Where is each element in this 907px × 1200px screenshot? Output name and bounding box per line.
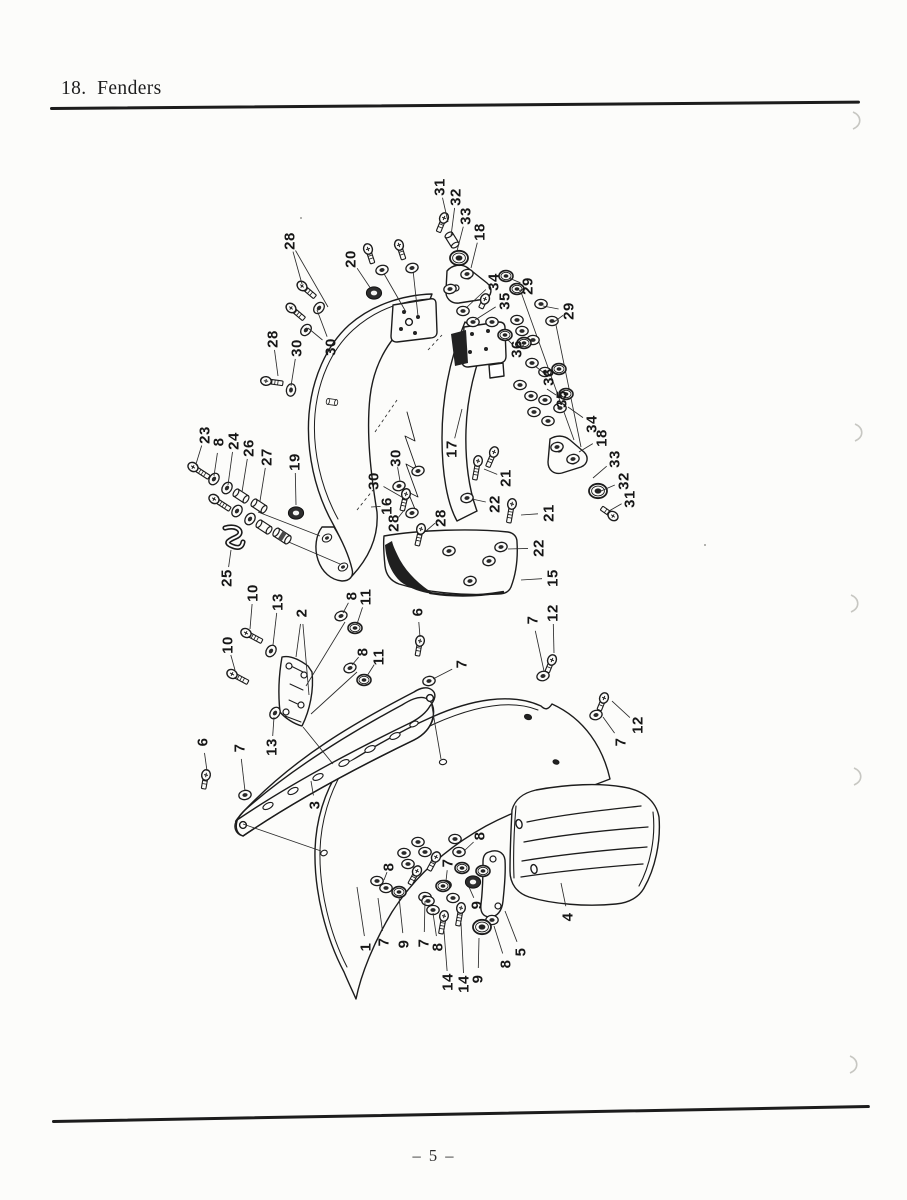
front-mud-flap — [384, 530, 518, 595]
s-clip-icon — [225, 527, 243, 547]
part-label-15: 15 — [521, 569, 562, 587]
washer-icon — [334, 610, 349, 623]
part-number: 25 — [219, 569, 236, 587]
part-number: 33 — [458, 207, 475, 225]
part-label-28: 28 — [426, 509, 450, 531]
part-number: 15 — [545, 569, 562, 587]
part-label-13: 13 — [264, 717, 281, 756]
part-number: 7 — [454, 660, 471, 669]
part-number: 27 — [259, 448, 276, 466]
leader-line — [357, 268, 371, 289]
assembly-line — [243, 824, 321, 851]
leader-line — [553, 624, 554, 653]
leader-line — [579, 444, 593, 452]
washer-icon — [343, 662, 358, 675]
washer-icon — [525, 391, 537, 400]
washer-icon — [516, 326, 528, 335]
part-label-18: 18 — [471, 223, 489, 268]
part-label-9: 9 — [396, 897, 413, 948]
assembly-line — [556, 325, 581, 447]
part-label-7: 7 — [440, 859, 457, 881]
part-number: 9 — [396, 940, 413, 949]
scan-artifacts — [300, 112, 862, 1073]
part-number: 36 — [509, 340, 526, 358]
part-label-21: 21 — [521, 504, 558, 522]
part-number: 28 — [282, 232, 299, 250]
bolt-icon — [239, 627, 264, 646]
leader-line — [446, 870, 447, 881]
part-number: 7 — [525, 616, 542, 625]
part-number: 29 — [520, 277, 537, 295]
part-number: 35 — [554, 390, 571, 408]
grommet-icon — [366, 287, 381, 299]
spacer-icon — [444, 231, 460, 249]
washer-icon — [243, 511, 258, 526]
nut-icon — [436, 881, 450, 892]
leader-line — [273, 613, 277, 645]
leader-line — [295, 473, 296, 505]
part-label-11: 11 — [367, 649, 388, 676]
washer-icon — [298, 322, 313, 337]
part-number: 5 — [513, 948, 530, 957]
part-number: 10 — [220, 636, 237, 654]
part-number: 32 — [616, 472, 633, 490]
part-label-30: 30 — [289, 339, 306, 386]
part-label-21: 21 — [484, 469, 515, 487]
spacer-icon — [255, 519, 273, 535]
leader-line — [457, 227, 463, 251]
fender-top-plate — [391, 299, 437, 342]
assembly-line — [311, 672, 357, 714]
leader-line — [612, 701, 630, 718]
washer-icon — [449, 834, 461, 843]
leader-line — [229, 550, 231, 567]
part-label-10: 10 — [220, 636, 237, 670]
washer-icon — [457, 306, 469, 315]
leader-line — [260, 468, 265, 501]
washer-icon — [412, 837, 424, 846]
part-number: 28 — [433, 509, 450, 527]
washer-icon — [398, 848, 410, 857]
part-label-30: 30 — [308, 310, 340, 356]
part-label-36: 36 — [535, 366, 558, 386]
leader-line — [317, 310, 327, 337]
nut-icon — [498, 330, 512, 341]
leader-line — [471, 243, 477, 268]
washer-icon — [542, 416, 554, 425]
part-number: 1 — [358, 943, 375, 952]
washer-icon — [411, 465, 425, 477]
leader-line — [419, 622, 420, 637]
bolt-icon — [199, 769, 211, 790]
bracket-2 — [279, 657, 313, 726]
leader-line — [469, 887, 474, 898]
leader-line — [352, 657, 359, 665]
leader-line — [609, 504, 622, 511]
part-number: 20 — [343, 250, 360, 268]
scanned-manual-page: 18. Fenders — [0, 0, 907, 1200]
part-number: 30 — [323, 338, 340, 356]
leader-line — [273, 717, 274, 736]
part-number: 31 — [432, 178, 449, 196]
part-label-8: 8 — [494, 926, 515, 968]
bracket-18-lower — [548, 436, 587, 473]
part-number: 35 — [497, 292, 514, 310]
part-number: 13 — [264, 738, 281, 756]
part-number: 19 — [287, 453, 304, 471]
part-number: 8 — [355, 648, 372, 657]
bolt-icon — [186, 461, 211, 481]
large-nut-icon — [473, 920, 491, 934]
part-number: 8 — [381, 863, 398, 872]
washer-icon — [535, 299, 547, 308]
bolt-icon — [504, 498, 517, 523]
assembly-line — [306, 622, 345, 686]
part-label-30: 30 — [388, 449, 405, 481]
leader-line — [535, 631, 544, 671]
washer-icon — [402, 859, 414, 868]
spacer-icon — [326, 398, 338, 405]
part-label-20: 20 — [343, 250, 372, 289]
part-number: 10 — [245, 584, 262, 602]
large-nut-icon — [450, 251, 468, 265]
part-number: 30 — [289, 339, 306, 357]
bolt-icon — [454, 902, 467, 926]
part-number: 36 — [541, 368, 558, 386]
part-number: 34 — [486, 273, 503, 291]
part-label-28: 28 — [265, 330, 282, 376]
part-number: 7 — [613, 738, 630, 747]
part-number: 17 — [444, 440, 461, 458]
leader-line — [464, 842, 474, 851]
bolt-icon — [284, 301, 307, 322]
washer-icon — [405, 262, 419, 274]
washer-icon — [453, 847, 465, 856]
leader-line — [343, 603, 348, 613]
part-number: 8 — [472, 832, 489, 841]
washer-icon — [419, 847, 431, 856]
part-label-11: 11 — [357, 589, 375, 624]
leader-line — [228, 452, 233, 485]
washer-icon — [447, 893, 459, 902]
part-label-7: 7 — [603, 717, 630, 746]
part-label-36: 36 — [506, 338, 526, 358]
leader-line — [205, 753, 208, 771]
leader-line — [399, 897, 403, 933]
leader-line — [593, 466, 607, 478]
spacer-icon — [250, 498, 268, 514]
part-number: 12 — [545, 604, 562, 622]
washer-icon — [528, 407, 540, 416]
bolt-icon — [393, 239, 407, 261]
nut-icon — [455, 863, 469, 874]
bolt-icon — [413, 635, 425, 656]
washer-icon — [238, 789, 252, 800]
part-number: 7 — [376, 938, 393, 947]
bolt-icon — [225, 668, 250, 687]
leader-line — [275, 350, 279, 376]
spacer-icon — [232, 488, 250, 504]
leader-line — [293, 252, 302, 284]
washer-icon — [422, 896, 434, 905]
part-label-6: 6 — [195, 738, 212, 771]
part-label-9: 9 — [470, 938, 487, 983]
washer-icon — [514, 380, 526, 389]
washer-icon — [511, 315, 523, 324]
part-number: 2 — [294, 609, 311, 618]
bolt-icon — [470, 455, 483, 480]
leader-line — [291, 359, 295, 386]
part-label-7: 7 — [232, 744, 249, 791]
part-number: 13 — [270, 593, 287, 611]
washer-icon — [230, 503, 245, 518]
part-number: 11 — [358, 589, 375, 606]
part-label-12: 12 — [545, 604, 562, 653]
part-label-10: 10 — [245, 584, 262, 629]
grommet-icon — [288, 507, 303, 519]
leader-line — [603, 717, 615, 733]
leader-line — [521, 514, 538, 515]
nut-icon — [357, 675, 371, 686]
part-label-7: 7 — [433, 660, 471, 679]
part-label-13: 13 — [270, 593, 287, 645]
leader-line — [433, 913, 436, 936]
plate-center-hole — [406, 319, 413, 326]
leader-line — [296, 624, 301, 657]
part-label-27: 27 — [259, 448, 276, 501]
washer-icon — [539, 395, 551, 404]
washer-icon — [405, 507, 419, 519]
leader-line — [242, 459, 247, 492]
part-number: 6 — [195, 738, 212, 747]
rear-fender-flap — [510, 785, 659, 906]
part-number: 18 — [594, 429, 611, 447]
part-label-25: 25 — [219, 550, 236, 587]
part-number: 3 — [307, 801, 324, 810]
page-number: – 5 – — [0, 1146, 868, 1166]
nut-icon — [348, 623, 362, 634]
bolt-icon — [398, 488, 411, 512]
stay-plate-square-hole — [489, 363, 504, 378]
washer-icon — [486, 317, 498, 326]
part-label-8: 8 — [352, 648, 372, 665]
part-number: 9 — [469, 901, 486, 910]
part-label-26: 26 — [241, 439, 258, 492]
part-number: 6 — [410, 608, 427, 617]
part-label-34: 34 — [568, 407, 601, 433]
part-number: 29 — [561, 302, 578, 320]
part-number: 12 — [630, 716, 647, 734]
washer-icon — [220, 480, 235, 495]
bolt-icon — [260, 376, 283, 388]
part-label-14: 14 — [440, 931, 457, 991]
part-number: 31 — [622, 490, 639, 508]
leader-line — [521, 579, 542, 580]
leader-line — [484, 469, 497, 474]
bolt-icon — [599, 504, 620, 522]
washer-icon — [526, 358, 538, 367]
exploded-parts-diagram: 31 32 33 18 34 35 29 29 36 36 35 34 18 3… — [0, 0, 907, 1200]
leader-line — [505, 911, 517, 942]
large-nut-icon — [589, 484, 607, 498]
part-label-31: 31 — [609, 490, 639, 511]
bolt-icon — [295, 279, 318, 300]
leader-line — [250, 604, 252, 629]
bolt-icon — [484, 445, 500, 468]
leader-line — [241, 759, 245, 791]
leader-line — [308, 328, 323, 340]
leader-line — [196, 446, 202, 465]
part-number: 9 — [470, 975, 487, 984]
part-number: 8 — [498, 960, 515, 969]
part-number: 7 — [440, 859, 457, 868]
part-number: 7 — [232, 744, 249, 753]
leader-line — [494, 926, 503, 954]
washer-icon — [311, 300, 326, 315]
bushing-icon — [272, 527, 293, 545]
leader-line — [398, 467, 400, 481]
leader-line — [424, 901, 425, 932]
bolt-icon — [437, 910, 450, 934]
washer-icon — [264, 643, 279, 658]
part-label-7: 7 — [525, 616, 545, 671]
washer-icon — [375, 264, 389, 276]
part-number: 21 — [498, 469, 515, 487]
leader-line — [451, 208, 455, 236]
washer-icon — [546, 316, 558, 325]
part-number: 22 — [487, 495, 504, 513]
part-number: 22 — [531, 539, 548, 557]
leader-line — [433, 669, 452, 679]
part-label-28: 28 — [282, 232, 329, 307]
part-label-19: 19 — [287, 453, 304, 505]
washer-icon — [422, 675, 436, 686]
part-number: 14 — [440, 973, 457, 991]
part-number: 28 — [265, 330, 282, 348]
part-label-12: 12 — [612, 701, 647, 734]
bolt-icon — [543, 653, 558, 673]
nut-icon — [476, 866, 490, 877]
stay-top-plate — [462, 322, 506, 367]
leader-line — [461, 923, 464, 973]
leader-line — [231, 655, 235, 670]
leader-line — [568, 407, 583, 418]
part-number: 26 — [241, 439, 258, 457]
bolt-icon — [434, 211, 450, 233]
bolt-icon — [207, 493, 232, 513]
leader-line — [478, 938, 479, 968]
hidden-line — [375, 400, 397, 432]
part-number: 11 — [371, 649, 388, 666]
part-number: 16 — [379, 497, 396, 515]
grommet-icon — [465, 876, 480, 888]
leader-line — [214, 453, 217, 476]
part-number: 30 — [388, 449, 405, 467]
bolt-icon — [595, 691, 610, 711]
part-number: 18 — [472, 223, 489, 241]
part-number: 21 — [541, 504, 558, 522]
part-number: 30 — [366, 472, 383, 490]
bolt-icon — [362, 243, 376, 265]
part-label-6: 6 — [410, 608, 427, 637]
leader-line — [357, 607, 363, 624]
leader-line — [508, 548, 528, 549]
nut-icon — [392, 887, 406, 898]
part-number: 4 — [560, 912, 577, 921]
washer-icon — [380, 883, 392, 892]
part-number: 32 — [448, 188, 465, 206]
part-number: 28 — [386, 514, 403, 532]
part-number: 33 — [607, 450, 624, 468]
part-label-5: 5 — [505, 911, 530, 956]
part-number: 8 — [430, 943, 447, 952]
